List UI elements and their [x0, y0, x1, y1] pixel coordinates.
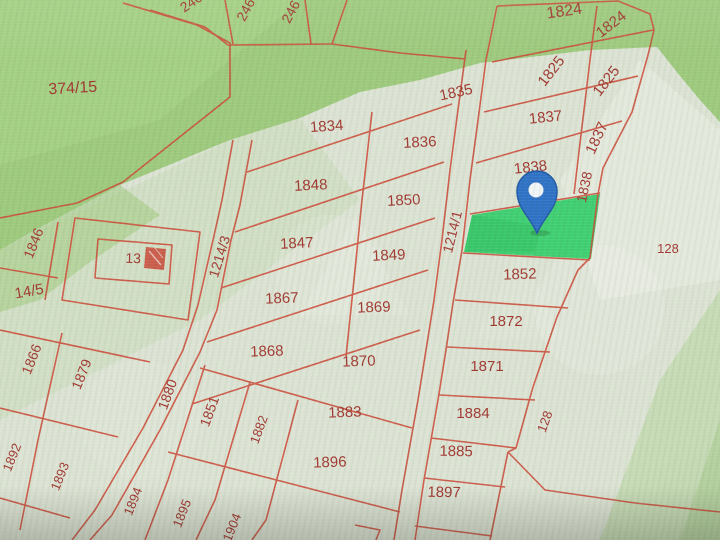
parcel-label-1835: 1835: [438, 81, 474, 105]
parcel-label-1852: 1852: [503, 265, 537, 283]
parcel-label-1834: 1834: [309, 117, 343, 136]
parcel-label-1892: 1892: [0, 441, 24, 473]
parcel-label-1895: 1895: [169, 497, 194, 529]
parcel-label-1884: 1884: [456, 405, 489, 422]
parcel-label-1897: 1897: [427, 484, 461, 502]
parcel-label-1837: 1837: [528, 107, 563, 127]
parcel-label-1872: 1872: [489, 313, 522, 330]
parcel-label-128: 128: [657, 241, 679, 256]
parcel-label-1904: 1904: [219, 511, 244, 540]
parcel-label-1825: 1825: [534, 53, 568, 90]
parcel-label-1867: 1867: [265, 289, 299, 307]
parcel-label-1882: 1882: [247, 413, 271, 445]
parcel-label-1848: 1848: [294, 176, 328, 195]
parcel-label-1847: 1847: [280, 234, 314, 253]
building-footprint: [144, 247, 166, 270]
parcel-label-128: 128: [534, 409, 556, 435]
parcel-label-1871: 1871: [470, 358, 503, 375]
parcel-label-1870: 1870: [342, 352, 376, 370]
parcel-label-1836: 1836: [403, 133, 437, 152]
parcel-label-1868: 1868: [250, 342, 284, 360]
parcel-label-1893: 1893: [47, 460, 72, 492]
parcel-label-374-15: 374/15: [48, 79, 98, 99]
cadastral-map: 374/152462246246183418351836184818501847…: [0, 0, 720, 540]
parcel-label-1885: 1885: [439, 443, 473, 461]
map-screenshot: 374/152462246246183418351836184818501847…: [0, 0, 720, 540]
parcel-label-1850: 1850: [387, 191, 421, 210]
parcel-label-1894: 1894: [120, 485, 145, 517]
parcel-label-1851: 1851: [196, 394, 222, 429]
parcel-label-1883: 1883: [328, 403, 362, 421]
parcel-label-1214-1: 1214/1: [439, 209, 465, 255]
parcel-label-1849: 1849: [372, 246, 406, 265]
parcel-label-1869: 1869: [357, 298, 391, 316]
parcel-label-1896: 1896: [313, 453, 347, 471]
parcel-label-13: 13: [125, 250, 141, 267]
pin-hole: [529, 183, 544, 198]
